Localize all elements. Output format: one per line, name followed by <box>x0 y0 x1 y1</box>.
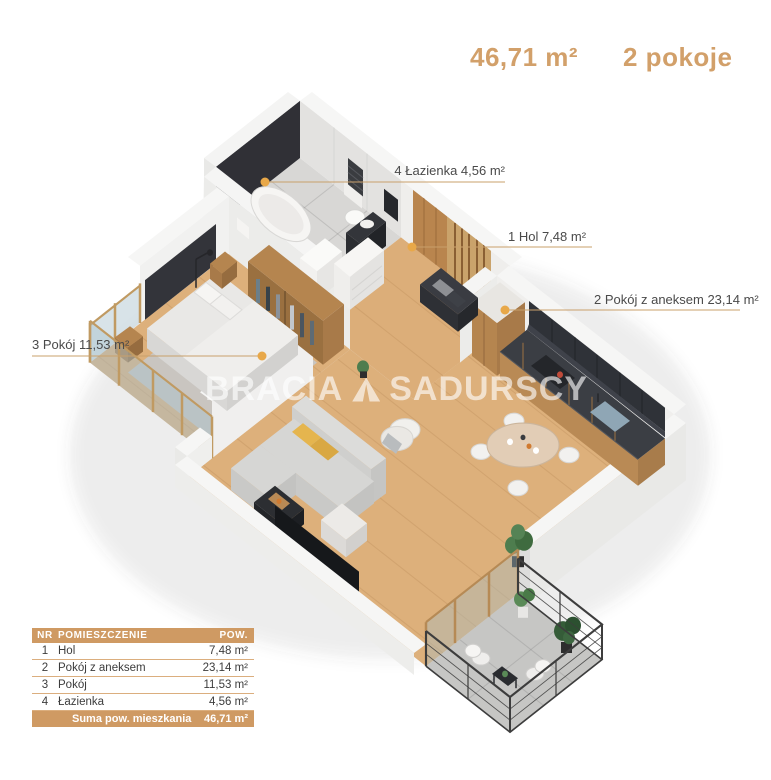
row-nr: 2 <box>32 662 58 674</box>
row-name: Pokój z aneksem <box>58 662 186 674</box>
dining-table <box>487 423 559 467</box>
row-name: Pokój <box>58 679 186 691</box>
footer-value: 46,71 m² <box>204 713 248 725</box>
table-row: 2 Pokój z aneksem 23,14 m² <box>32 660 254 677</box>
room-marker-dot <box>261 178 270 187</box>
col-header-area: POW. <box>186 630 254 641</box>
label-hall: 1 Hol 7,48 m² <box>508 229 586 244</box>
row-nr: 1 <box>32 645 58 657</box>
label-bedroom: 3 Pokój 11,53 m² <box>32 337 129 352</box>
floorplan-page: 46,71 m² 2 pokoje 4 Łazienka 4,56 m² 1 H… <box>0 0 771 780</box>
col-header-name: POMIESZCZENIE <box>58 630 186 641</box>
row-area: 11,53 m² <box>186 679 254 691</box>
room-marker-dot <box>258 352 267 361</box>
label-living: 2 Pokój z aneksem 23,14 m² <box>594 292 759 307</box>
pot-on-hob <box>557 371 563 378</box>
row-area: 7,48 m² <box>186 645 254 657</box>
area-table: NR POMIESZCZENIE POW. 1 Hol 7,48 m² 2 Po… <box>32 628 254 727</box>
row-nr: 4 <box>32 696 58 708</box>
room-count-header: 2 pokoje <box>623 42 732 73</box>
area-table-header: NR POMIESZCZENIE POW. <box>32 628 254 643</box>
row-area: 23,14 m² <box>186 662 254 674</box>
room-marker-dot <box>408 243 417 252</box>
table-row: 1 Hol 7,48 m² <box>32 643 254 660</box>
row-area: 4,56 m² <box>186 696 254 708</box>
table-row: 4 Łazienka 4,56 m² <box>32 694 254 711</box>
area-table-footer: Suma pow. mieszkania 46,71 m² <box>32 711 254 727</box>
col-header-nr: NR <box>32 630 58 641</box>
label-bathroom: 4 Łazienka 4,56 m² <box>330 163 505 178</box>
row-name: Hol <box>58 645 186 657</box>
row-nr: 3 <box>32 679 58 691</box>
table-row: 3 Pokój 11,53 m² <box>32 677 254 694</box>
footer-label: Suma pow. mieszkania <box>72 713 191 725</box>
room-marker-dot <box>501 306 510 315</box>
total-area-header: 46,71 m² <box>470 42 578 73</box>
row-name: Łazienka <box>58 696 186 708</box>
